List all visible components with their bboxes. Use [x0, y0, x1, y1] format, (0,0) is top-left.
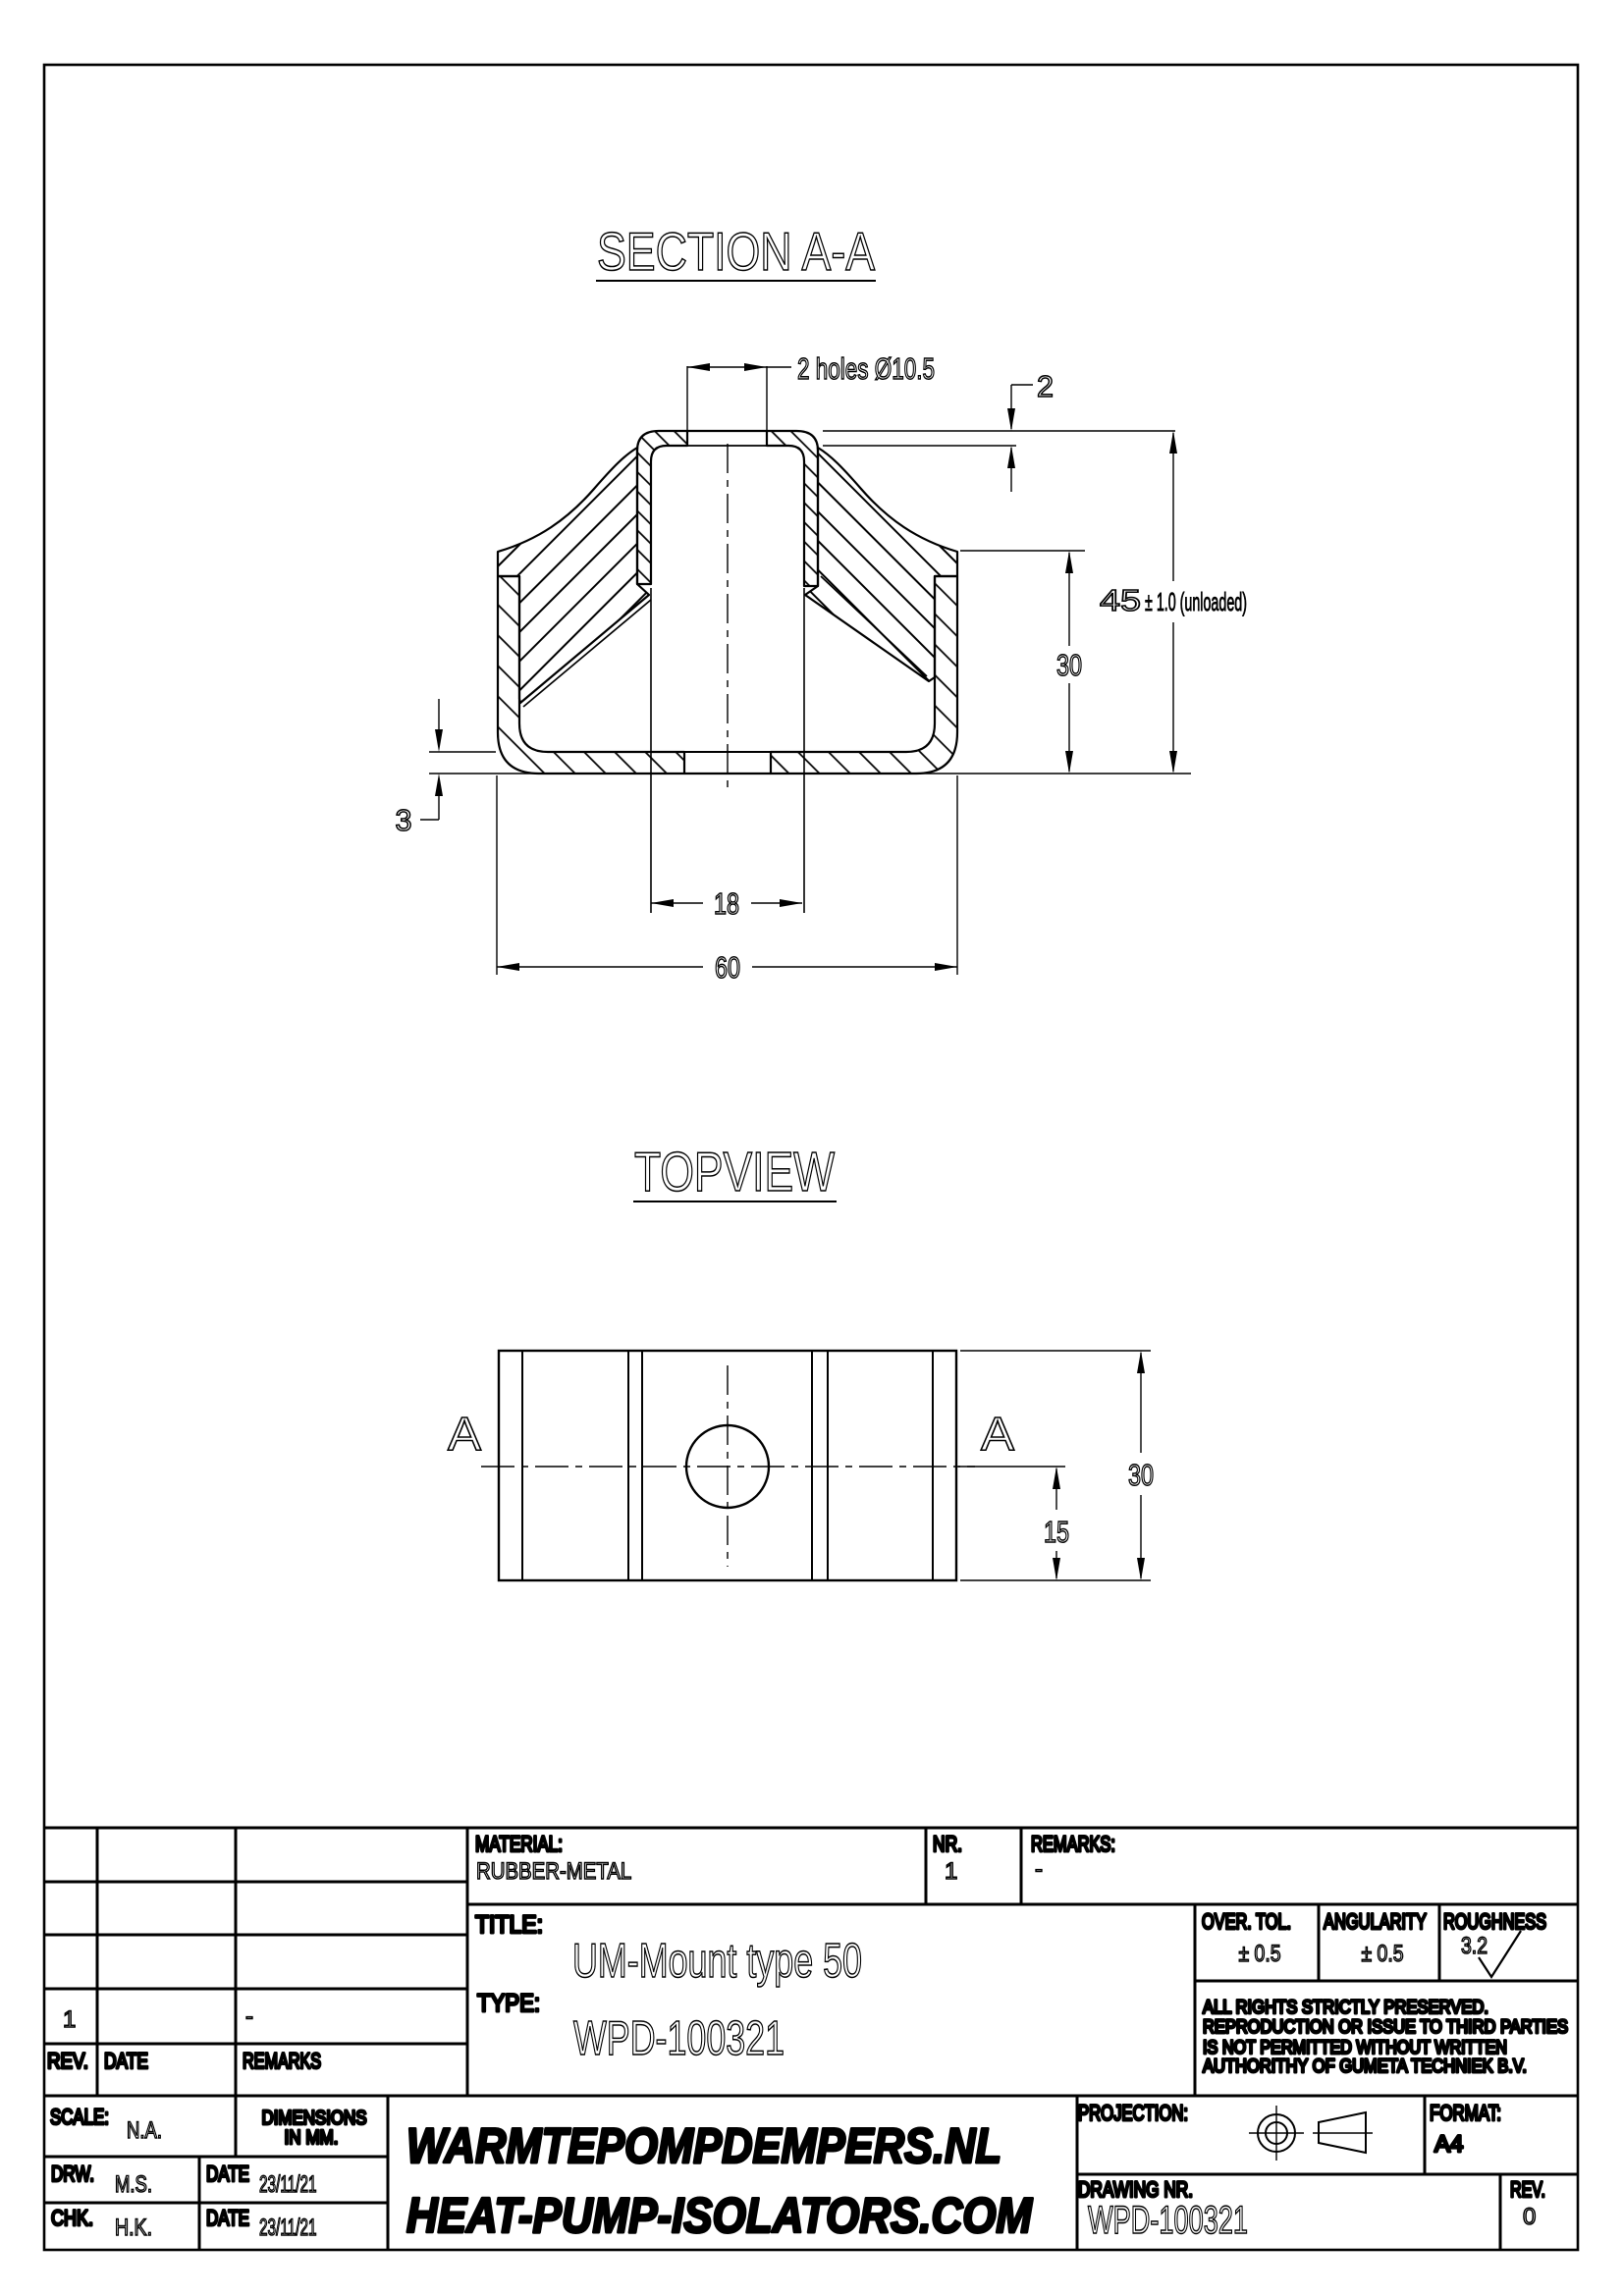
- svg-text:NR.: NR.: [933, 1832, 962, 1856]
- svg-text:TOPVIEW: TOPVIEW: [634, 1141, 835, 1203]
- svg-text:SECTION A-A: SECTION A-A: [597, 221, 875, 282]
- svg-text:REV.: REV.: [47, 2049, 88, 2073]
- svg-text:30: 30: [1128, 1458, 1154, 1492]
- svg-text:REV.: REV.: [1510, 2177, 1545, 2202]
- svg-text:WARMTEPOMPDEMPERS.NL: WARMTEPOMPDEMPERS.NL: [406, 2118, 1001, 2173]
- svg-text:OVER. TOL.: OVER. TOL.: [1202, 1909, 1291, 1934]
- svg-text:WPD-100321: WPD-100321: [1088, 2199, 1248, 2242]
- svg-text:UM-Mount type 50: UM-Mount type 50: [572, 1935, 862, 1988]
- svg-text:60: 60: [715, 950, 740, 985]
- svg-text:REMARKS:: REMARKS:: [1031, 1832, 1115, 1856]
- svg-text:23/11/21: 23/11/21: [259, 2172, 317, 2198]
- svg-text:45: 45: [1100, 583, 1141, 617]
- svg-text:DATE: DATE: [206, 2206, 249, 2230]
- svg-text:TITLE:: TITLE:: [475, 1911, 543, 1939]
- svg-text:23/11/21: 23/11/21: [259, 2216, 317, 2241]
- svg-text:PROJECTION:: PROJECTION:: [1078, 2101, 1188, 2125]
- svg-text:-: -: [1035, 1856, 1043, 1883]
- svg-text:0: 0: [1523, 2204, 1536, 2230]
- svg-text:DRW.: DRW.: [51, 2162, 94, 2186]
- svg-text:WPD-100321: WPD-100321: [573, 2012, 784, 2065]
- svg-text:RUBBER-METAL: RUBBER-METAL: [476, 1857, 631, 1884]
- svg-text:1: 1: [945, 1858, 957, 1885]
- svg-text:MATERIAL:: MATERIAL:: [475, 1832, 563, 1856]
- svg-text:-: -: [245, 2003, 253, 2030]
- svg-text:HEAT-PUMP-ISOLATORS.COM: HEAT-PUMP-ISOLATORS.COM: [406, 2188, 1033, 2243]
- svg-text:1: 1: [63, 2006, 76, 2033]
- svg-text:N.A.: N.A.: [127, 2117, 162, 2144]
- svg-text:± 0.5: ± 0.5: [1362, 1941, 1404, 1967]
- svg-text:2: 2: [1037, 369, 1054, 403]
- svg-text:CHK.: CHK.: [51, 2206, 93, 2230]
- svg-text:3: 3: [396, 803, 412, 837]
- svg-text:DATE: DATE: [206, 2162, 249, 2186]
- svg-text:ROUGHNESS: ROUGHNESS: [1443, 1909, 1546, 1934]
- svg-text:IS NOT PERMITTED WITHOUT WRITT: IS NOT PERMITTED WITHOUT WRITTEN: [1203, 2038, 1507, 2058]
- svg-text:DATE: DATE: [104, 2049, 148, 2073]
- svg-text:A: A: [981, 1409, 1014, 1461]
- svg-text:AUTHORITHY OF GUMETA TECHNIEK: AUTHORITHY OF GUMETA TECHNIEK B.V.: [1203, 2056, 1527, 2077]
- svg-text:3.2: 3.2: [1461, 1933, 1488, 1959]
- svg-text:A: A: [448, 1409, 481, 1461]
- svg-text:ANGULARITY: ANGULARITY: [1324, 1909, 1427, 1934]
- svg-text:SCALE:: SCALE:: [50, 2105, 109, 2129]
- svg-text:DIMENSIONS: DIMENSIONS: [262, 2108, 367, 2129]
- svg-text:TYPE:: TYPE:: [477, 1990, 540, 2017]
- svg-text:± 0.5: ± 0.5: [1239, 1941, 1281, 1967]
- svg-text:REPRODUCTION OR ISSUE TO THIRD: REPRODUCTION OR ISSUE TO THIRD PARTIES: [1203, 2017, 1568, 2038]
- svg-text:REMARKS: REMARKS: [243, 2049, 321, 2073]
- svg-text:H.K.: H.K.: [115, 2215, 152, 2241]
- svg-text:FORMAT:: FORMAT:: [1430, 2101, 1501, 2125]
- svg-text:A4: A4: [1434, 2131, 1463, 2158]
- svg-text:18: 18: [714, 886, 739, 921]
- svg-text:M.S.: M.S.: [115, 2171, 152, 2198]
- svg-text:ALL RIGHTS STRICTLY PRESERVED.: ALL RIGHTS STRICTLY PRESERVED.: [1203, 1998, 1488, 2018]
- svg-text:± 1.0 (unloaded): ± 1.0 (unloaded): [1145, 587, 1247, 616]
- svg-text:30: 30: [1056, 648, 1082, 682]
- svg-text:15: 15: [1044, 1515, 1069, 1549]
- svg-text:IN MM.: IN MM.: [285, 2127, 339, 2149]
- svg-text:2 holes Ø10.5: 2 holes Ø10.5: [797, 351, 935, 386]
